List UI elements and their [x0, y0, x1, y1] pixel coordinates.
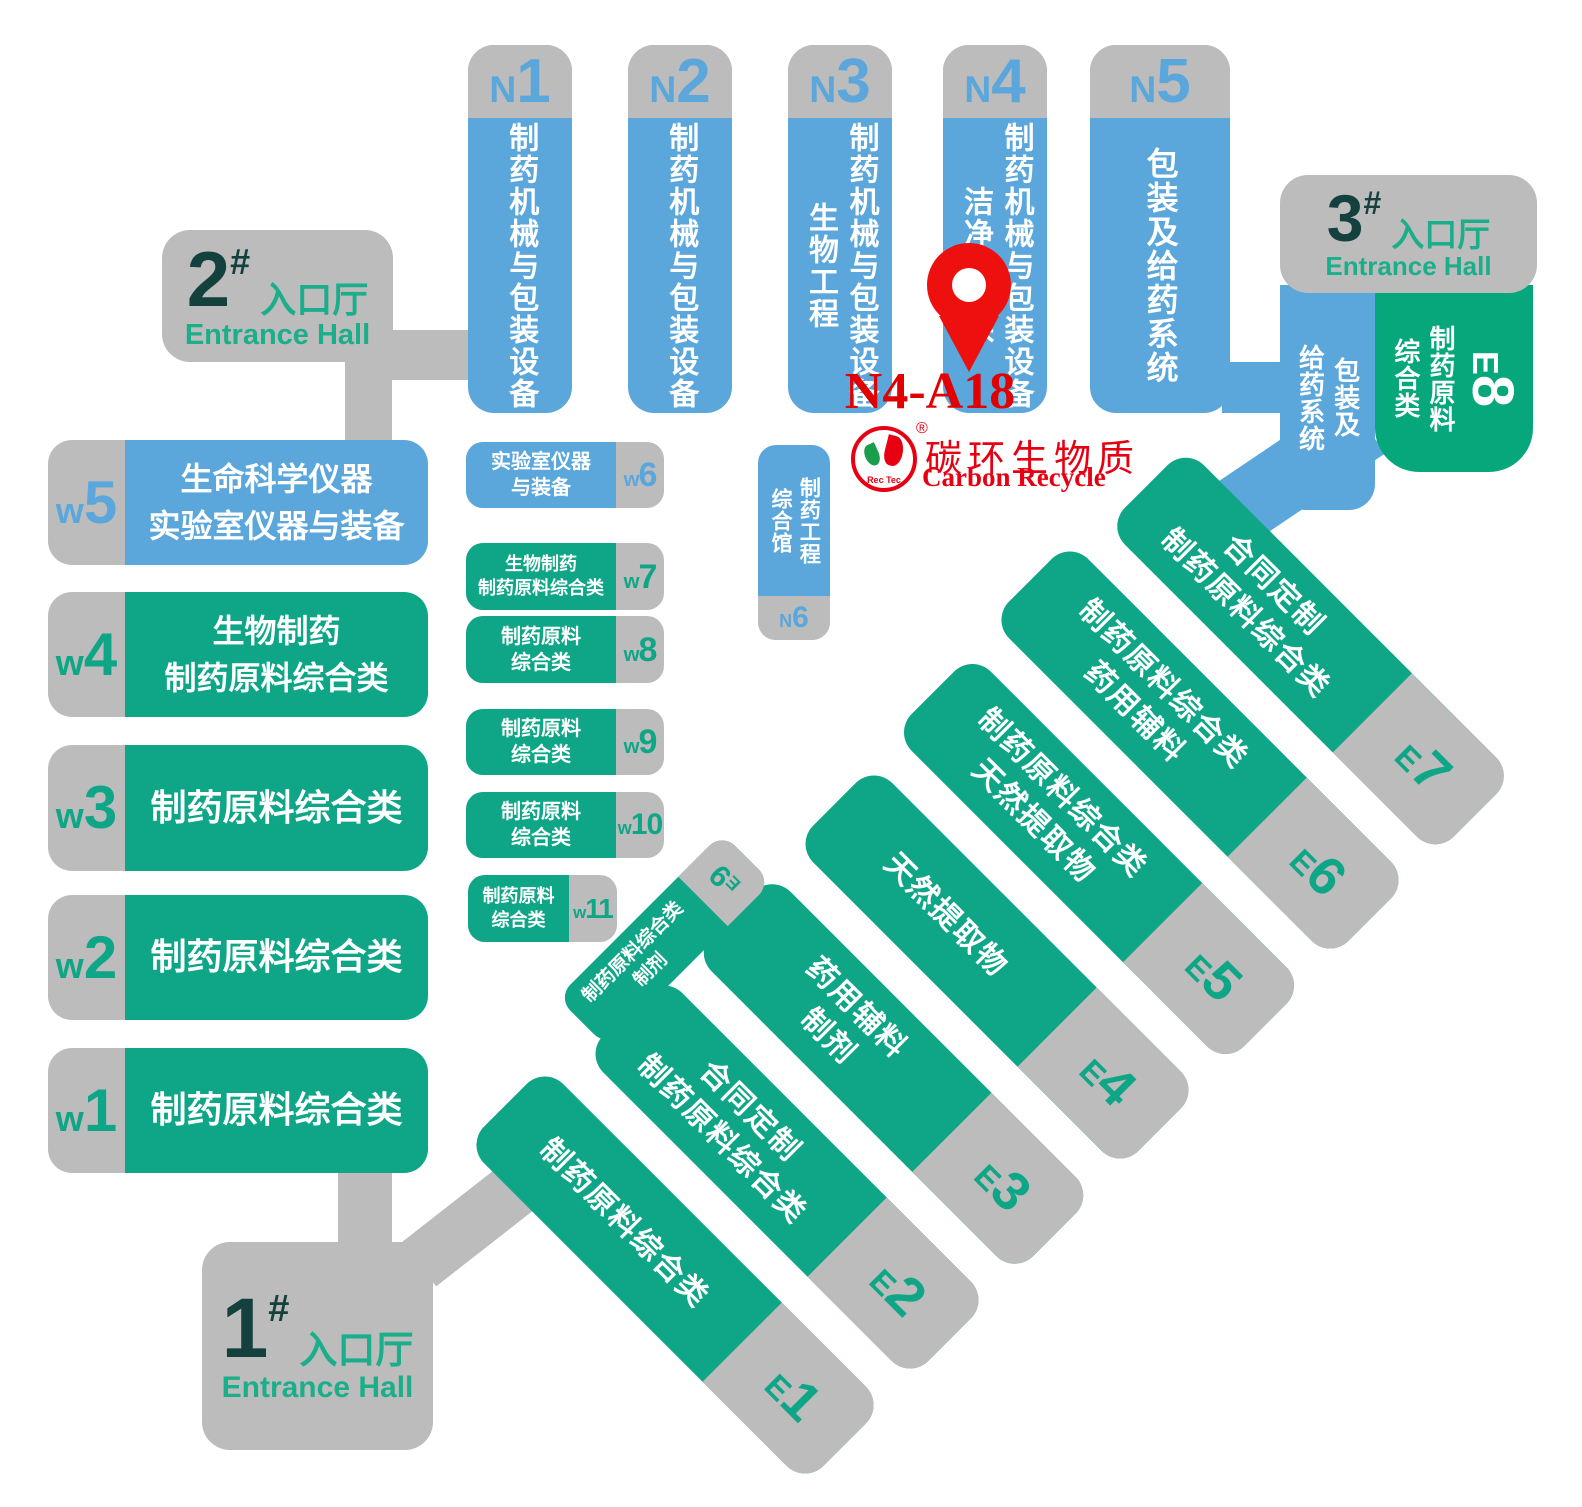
hall-w5-label: w5 — [56, 473, 117, 533]
entrance-2-label-en: Entrance Hall — [185, 318, 370, 353]
hall-e5-label: E5 — [1177, 937, 1252, 1012]
hall-n6-label: N6 — [779, 603, 809, 633]
hall-w6-category: 实验室仪器 与装备 — [466, 442, 616, 508]
connector-w1-entrance1 — [338, 1165, 392, 1250]
hall-n4-header: N4 — [943, 45, 1047, 118]
hall-w2-label: w2 — [56, 928, 117, 988]
hall-w1-category: 制药原料综合类 — [125, 1048, 428, 1173]
hall-e7-label: E7 — [1386, 727, 1461, 802]
hall-w8-tag: w8 — [616, 616, 664, 683]
entrance-hall-1: 1# 入口厅 Entrance Hall — [202, 1242, 433, 1450]
hall-w6: 实验室仪器 与装备 w6 — [466, 442, 664, 508]
entrance-hall-2: 2# 入口厅 Entrance Hall — [162, 230, 393, 362]
hall-n6-header: N6 — [758, 596, 830, 640]
hall-n1-label: N1 — [489, 51, 550, 113]
hall-e2-label: E2 — [861, 1251, 936, 1326]
hall-n3-header: N3 — [788, 45, 892, 118]
hall-w3: w3 制药原料综合类 — [48, 745, 428, 871]
booth-number: N4-A18 — [755, 362, 1105, 421]
hall-w5: w5 生命科学仪器 实验室仪器与装备 — [48, 440, 428, 565]
hall-n2-label: N2 — [649, 51, 710, 113]
hall-w8: 制药原料 综合类 w8 — [466, 616, 664, 683]
hall-w9-tag: w9 — [616, 709, 664, 775]
hall-n3: N3 制药机械与包装设备 生物工程 — [788, 45, 892, 413]
hall-w9: 制药原料 综合类 w9 — [466, 709, 664, 775]
hall-n1-header: N1 — [468, 45, 572, 118]
hall-w10-category: 制药原料 综合类 — [466, 792, 616, 858]
hall-n5: N5 包装及给药系统 — [1090, 45, 1230, 413]
logo-mark-text: Rec Tec — [855, 475, 913, 485]
hall-e4-label: E4 — [1071, 1041, 1146, 1116]
hall-w1: w1 制药原料综合类 — [48, 1048, 428, 1173]
hall-w3-category: 制药原料综合类 — [125, 745, 428, 871]
hall-w3-tag: w3 — [48, 745, 125, 871]
hall-w11: 制药原料 综合类 w11 — [468, 875, 617, 942]
hall-w6-label: w6 — [624, 458, 657, 492]
hall-n2: N2 制药机械与包装设备 — [628, 45, 732, 413]
hall-w7-category: 生物制药 制药原料综合类 — [466, 543, 616, 610]
hall-w10: 制药原料 综合类 w10 — [466, 792, 664, 858]
entrance-1-label-cn: 入口厅 — [299, 1332, 413, 1370]
entrance-2-number: 2 — [187, 240, 230, 318]
carbon-recycle-logo: Rec Tec — [851, 426, 917, 492]
hall-w5-category: 生命科学仪器 实验室仪器与装备 — [125, 440, 428, 565]
hall-w1-tag: w1 — [48, 1048, 125, 1173]
hall-e1-label: E1 — [756, 1356, 831, 1431]
hall-w7-tag: w7 — [616, 543, 664, 610]
hall-w11-category: 制药原料 综合类 — [468, 875, 569, 942]
hall-w4: w4 生物制药 制药原料综合类 — [48, 592, 428, 717]
hall-w5-tag: w5 — [48, 440, 125, 565]
hall-e8: 制药原料 综合类 E8 — [1375, 285, 1533, 472]
hall-w10-label: w10 — [618, 810, 662, 840]
hall-n3-label: N3 — [809, 51, 870, 113]
entrance-3-label-en: Entrance Hall — [1325, 251, 1491, 282]
hall-w2: w2 制药原料综合类 — [48, 895, 428, 1020]
entrance-3-hash: # — [1363, 187, 1381, 219]
hall-w3-label: w3 — [56, 778, 117, 838]
hall-n2-category: 制药机械与包装设备 — [660, 122, 701, 410]
hall-w6-tag: w6 — [616, 442, 664, 508]
hall-n4-label: N4 — [964, 51, 1025, 113]
hall-n5-label: N5 — [1129, 51, 1190, 113]
hall-w9-category: 制药原料 综合类 — [466, 709, 616, 775]
entrance-2-label-cn: 入口厅 — [260, 282, 368, 318]
hall-e9-label: E9 — [704, 859, 746, 901]
hall-w4-tag: w4 — [48, 592, 125, 717]
hall-n5-header: N5 — [1090, 45, 1230, 118]
hall-n1-category: 制药机械与包装设备 — [500, 122, 541, 410]
location-pin-hole — [952, 268, 986, 302]
hall-w4-label: w4 — [56, 625, 117, 685]
hall-w8-label: w8 — [624, 633, 657, 667]
hall-n1: N1 制药机械与包装设备 — [468, 45, 572, 413]
hall-e3-label: E3 — [966, 1146, 1041, 1221]
hall-w8-category: 制药原料 综合类 — [466, 616, 616, 683]
leaf-icon — [861, 442, 883, 468]
hall-w11-label: w11 — [573, 895, 613, 923]
hall-w2-tag: w2 — [48, 895, 125, 1020]
hall-n6-category: 制药工程 综合馆 — [766, 477, 823, 565]
hall-w9-label: w9 — [624, 725, 657, 759]
hall-w11-tag: w11 — [569, 875, 617, 942]
hall-e8-label: E8 — [1463, 350, 1521, 406]
hall-w10-tag: w10 — [616, 792, 664, 858]
hall-n6: 制药工程 综合馆 N6 — [758, 445, 830, 640]
entrance-2-hash: # — [230, 244, 250, 280]
entrance-1-label-en: Entrance Hall — [222, 1370, 414, 1406]
logo-name-en: Carbon Recycle — [922, 462, 1102, 493]
hall-e8-packaging: 包装及 给药系统 — [1280, 285, 1375, 510]
hall-w2-category: 制药原料综合类 — [125, 895, 428, 1020]
hall-w1-label: w1 — [56, 1081, 117, 1141]
hall-w4-category: 生物制药 制药原料综合类 — [125, 592, 428, 717]
flame-leaf-icon — [882, 434, 907, 467]
entrance-1-hash: # — [268, 1290, 289, 1328]
entrance-3-number: 3 — [1327, 185, 1364, 251]
hall-w7-label: w7 — [624, 560, 657, 594]
hall-n5-category: 包装及给药系统 — [1138, 147, 1181, 385]
hall-w7: 生物制药 制药原料综合类 w7 — [466, 543, 664, 610]
exhibition-floor-map: N1 制药机械与包装设备 N2 制药机械与包装设备 N3 制药机械与包装设备 生… — [0, 0, 1582, 1507]
entrance-3-label-cn: 入口厅 — [1391, 218, 1490, 251]
hall-e6-label: E6 — [1281, 831, 1356, 906]
hall-e8-category: 制药原料 综合类 — [1388, 325, 1458, 433]
hall-n2-header: N2 — [628, 45, 732, 118]
entrance-hall-3: 3# 入口厅 Entrance Hall — [1280, 175, 1537, 293]
hall-e8-packaging-text: 包装及 给药系统 — [1292, 344, 1362, 452]
entrance-1-number: 1 — [222, 1286, 269, 1370]
